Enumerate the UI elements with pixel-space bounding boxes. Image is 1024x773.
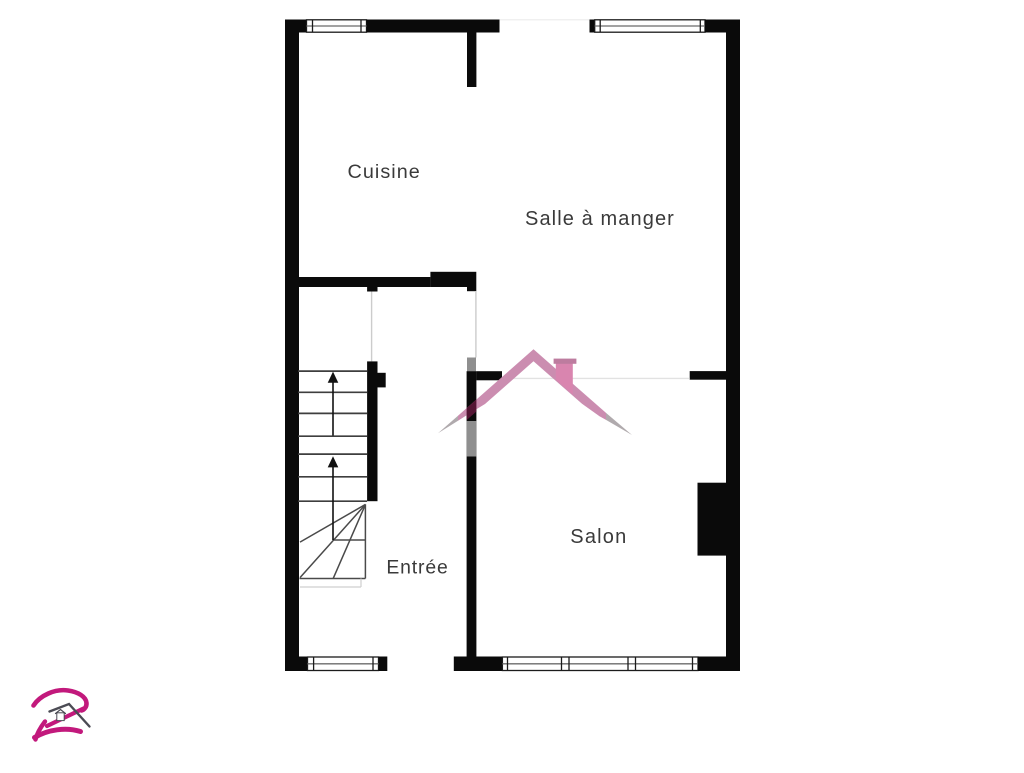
svg-text:Salon: Salon (570, 526, 627, 548)
svg-text:Cuisine: Cuisine (348, 161, 421, 183)
svg-text:Salle à manger: Salle à manger (525, 208, 675, 230)
svg-text:Entrée: Entrée (386, 557, 448, 579)
